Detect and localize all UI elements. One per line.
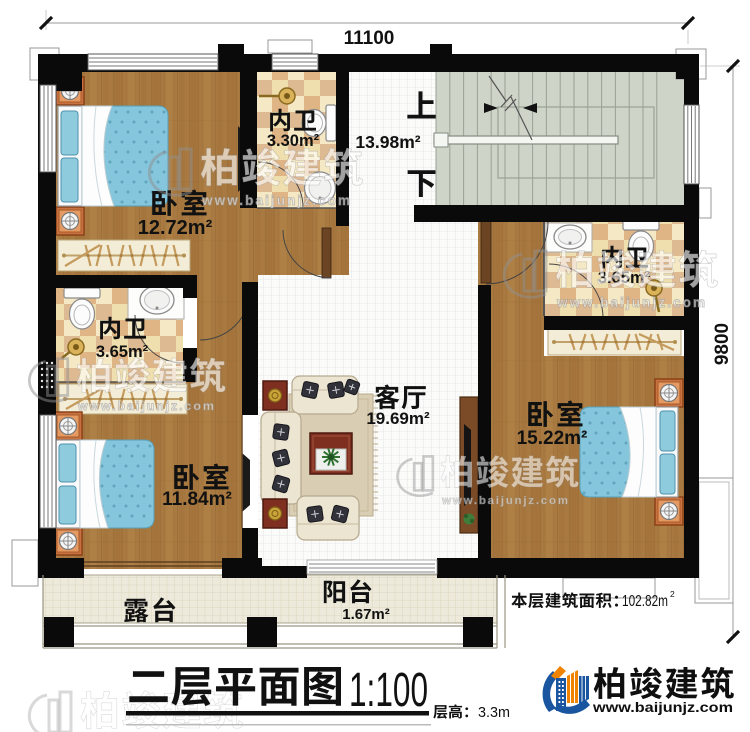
svg-text:19.69m²: 19.69m²: [366, 409, 430, 428]
svg-text:9800: 9800: [712, 323, 733, 365]
svg-text:12.72m²: 12.72m²: [138, 217, 213, 239]
svg-text:1:100: 1:100: [349, 664, 428, 717]
svg-text:www.baijunjz.com: www.baijunjz.com: [592, 699, 733, 715]
svg-text:3.30m²: 3.30m²: [267, 132, 320, 150]
svg-text:102.82m: 102.82m: [622, 593, 668, 610]
svg-text:11.84m²: 11.84m²: [162, 489, 232, 510]
svg-text:2: 2: [670, 589, 675, 599]
svg-text:3.3m: 3.3m: [478, 704, 510, 721]
svg-text:11100: 11100: [344, 28, 395, 49]
svg-text:13.98m²: 13.98m²: [355, 132, 420, 152]
svg-text:1.67m²: 1.67m²: [342, 606, 390, 623]
svg-text:15.22m²: 15.22m²: [517, 428, 588, 449]
